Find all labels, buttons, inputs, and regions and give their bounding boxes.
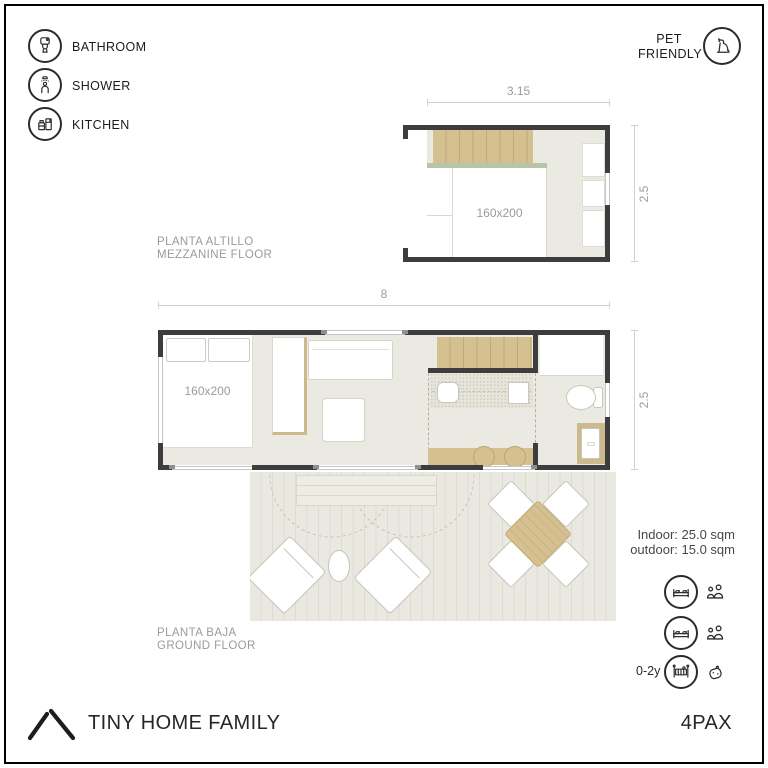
mezzanine-shelf-1 [582, 143, 605, 177]
sliding-door-2 [317, 466, 418, 470]
age-range-label: 0-2y [636, 664, 660, 678]
outdoor-deck [250, 472, 616, 621]
mezzanine-wall-right [605, 130, 610, 173]
kitchen-icon [28, 107, 62, 141]
ground-wall-top-left [158, 330, 325, 335]
ground-floor-label: PLANTA BAJA GROUND FLOOR [157, 627, 256, 653]
pet-label-line2: FRIENDLY [638, 47, 700, 62]
mezzanine-bed-size: 160x200 [476, 206, 522, 220]
toilet [566, 385, 596, 410]
mezzanine-stairs [433, 130, 533, 163]
roof-logo-icon [26, 706, 78, 742]
ground-bed-size: 160x200 [184, 384, 230, 398]
shower-icon [28, 68, 62, 102]
bathroom-wall [533, 335, 538, 373]
ground-width-dimline [158, 305, 610, 306]
mezzanine-title-en: MEZZANINE FLOOR [157, 249, 272, 262]
mezzanine-width-dim: 3.15 [427, 84, 610, 98]
two-adults-icon [702, 622, 729, 644]
ground-floor-plan: 160x200 [158, 330, 610, 470]
legend-label-kitchen: KITCHEN [72, 118, 130, 132]
mezzanine-height-dimline [634, 125, 635, 262]
pet-label-line1: PET [638, 32, 700, 47]
shower-stall [577, 423, 605, 464]
area-info: Indoor: 25.0 sqm outdoor: 15.0 sqm [630, 527, 735, 557]
floorplan-sheet: BATHROOM SHOWER [0, 0, 768, 768]
wardrobe [272, 337, 307, 435]
sliding-door-1 [172, 466, 252, 470]
dog-icon [703, 27, 741, 65]
ground-stairs [437, 337, 532, 368]
pillow [166, 338, 206, 362]
capacity-label: 4PAX [681, 712, 732, 735]
legend-label-bathroom: BATHROOM [72, 40, 147, 54]
ground-window-top [325, 330, 405, 335]
ground-title-en: GROUND FLOOR [157, 640, 256, 653]
brand-title: TINY HOME FAMILY [88, 712, 280, 735]
mezzanine-plan: 160x200 [403, 125, 610, 262]
pillow [208, 338, 250, 362]
double-bed-icon [664, 616, 698, 650]
ground-width-dim: 8 [158, 287, 610, 301]
sliding-door-3 [483, 466, 535, 470]
indoor-area: Indoor: 25.0 sqm [630, 527, 735, 542]
ground-height-dim: 2.5 [637, 380, 651, 420]
mezzanine-floor-label: PLANTA ALTILLO MEZZANINE FLOOR [157, 236, 272, 262]
double-bed-icon [664, 575, 698, 609]
burner [504, 446, 526, 468]
outdoor-area: outdoor: 15.0 sqm [630, 542, 735, 557]
mezzanine-wall-top [403, 125, 610, 130]
kitchen-sink [437, 382, 459, 403]
deck-steps [296, 475, 437, 506]
ground-wall-left [158, 335, 163, 357]
mezzanine-shelf-2 [582, 180, 605, 207]
baby-crib-icon [664, 655, 698, 689]
ground-height-dimline [634, 330, 635, 470]
ground-window-left [158, 357, 163, 443]
ground-title-es: PLANTA BAJA [157, 627, 256, 640]
baby-icon [703, 661, 728, 686]
bathroom-door-dash [535, 373, 536, 443]
bathroom-closet [540, 335, 603, 376]
kitchen-appliance [508, 382, 529, 404]
legend-label-shower: SHOWER [72, 79, 131, 93]
coffee-table [322, 398, 365, 442]
ground-wall-right [605, 335, 610, 383]
mezzanine-title-es: PLANTA ALTILLO [157, 236, 272, 249]
ground-window-right [605, 383, 610, 417]
toilet-icon [28, 29, 62, 63]
mezzanine-bed: 160x200 [453, 168, 547, 257]
mezzanine-height-dim: 2.5 [637, 174, 651, 214]
mezzanine-shelf-strip [427, 168, 453, 257]
ground-wall-top-right [405, 330, 610, 335]
mezzanine-shelf-3 [582, 210, 605, 247]
mezzanine-width-dimline [427, 102, 610, 103]
side-table [328, 550, 350, 582]
two-adults-icon [702, 581, 729, 603]
sofa [308, 340, 393, 380]
mezzanine-wall-bottom [403, 257, 610, 262]
mezzanine-window [605, 173, 610, 205]
